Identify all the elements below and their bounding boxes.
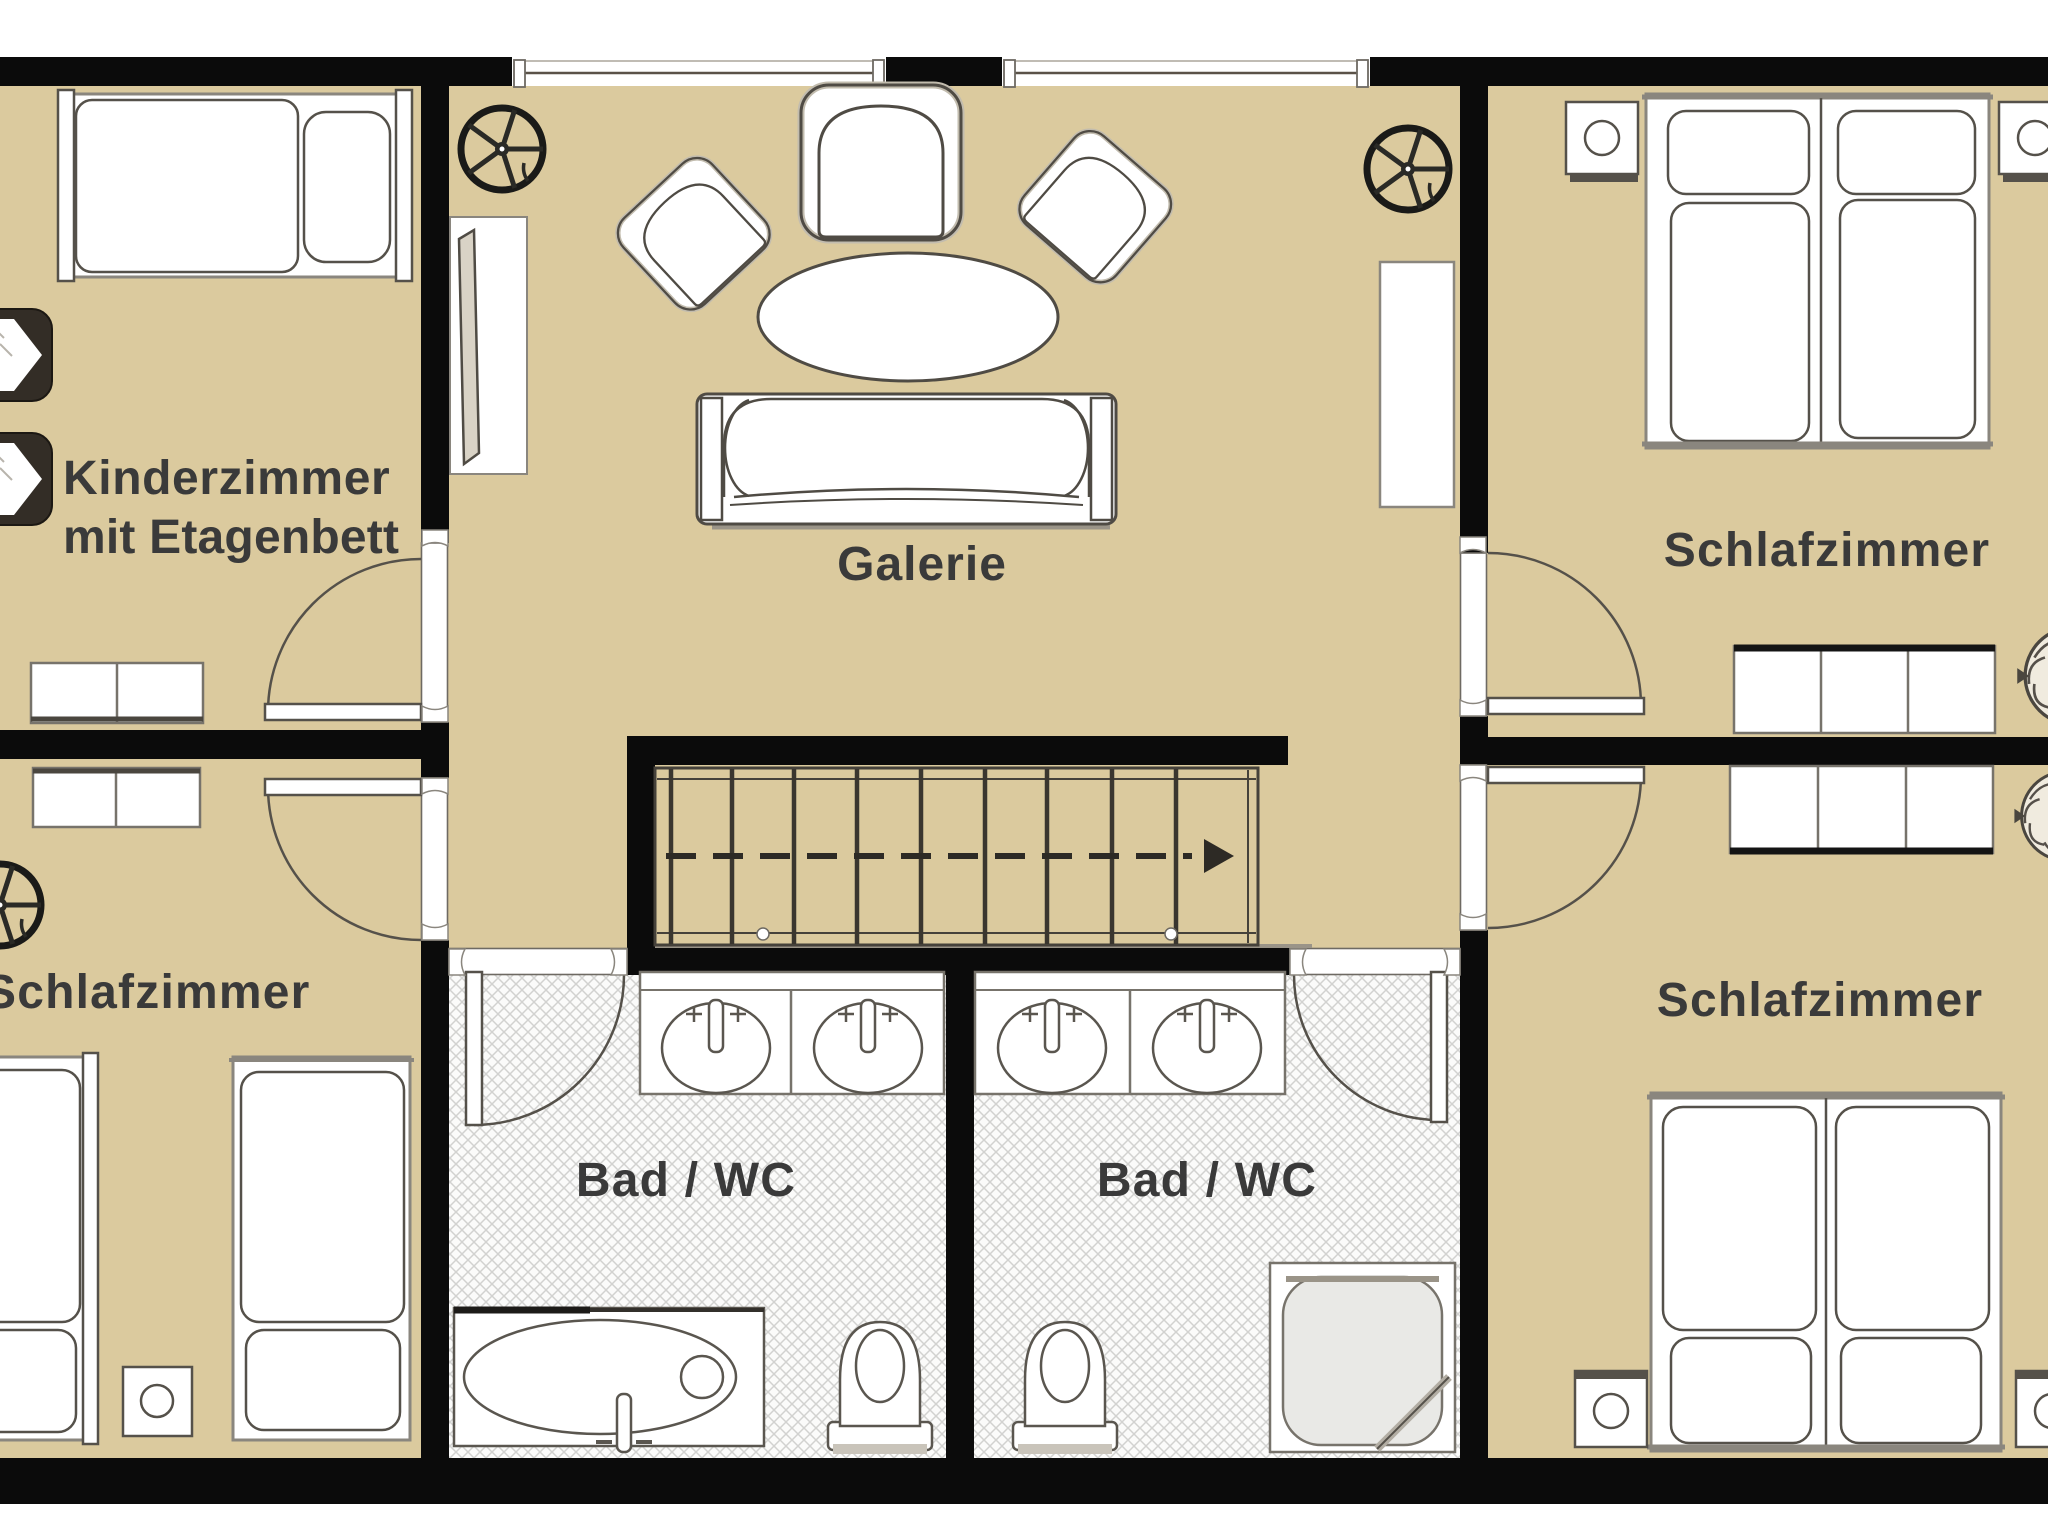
svg-text:Bad / WC: Bad / WC [1097,1154,1317,1207]
svg-text:mit Etagenbett: mit Etagenbett [63,511,399,564]
svg-text:Bad / WC: Bad / WC [576,1154,796,1207]
svg-text:Schlafzimmer: Schlafzimmer [0,966,311,1019]
svg-text:Schlafzimmer: Schlafzimmer [1664,524,1991,577]
svg-text:Schlafzimmer: Schlafzimmer [1657,974,1984,1027]
svg-text:Galerie: Galerie [837,538,1007,591]
svg-text:Kinderzimmer: Kinderzimmer [63,452,390,505]
